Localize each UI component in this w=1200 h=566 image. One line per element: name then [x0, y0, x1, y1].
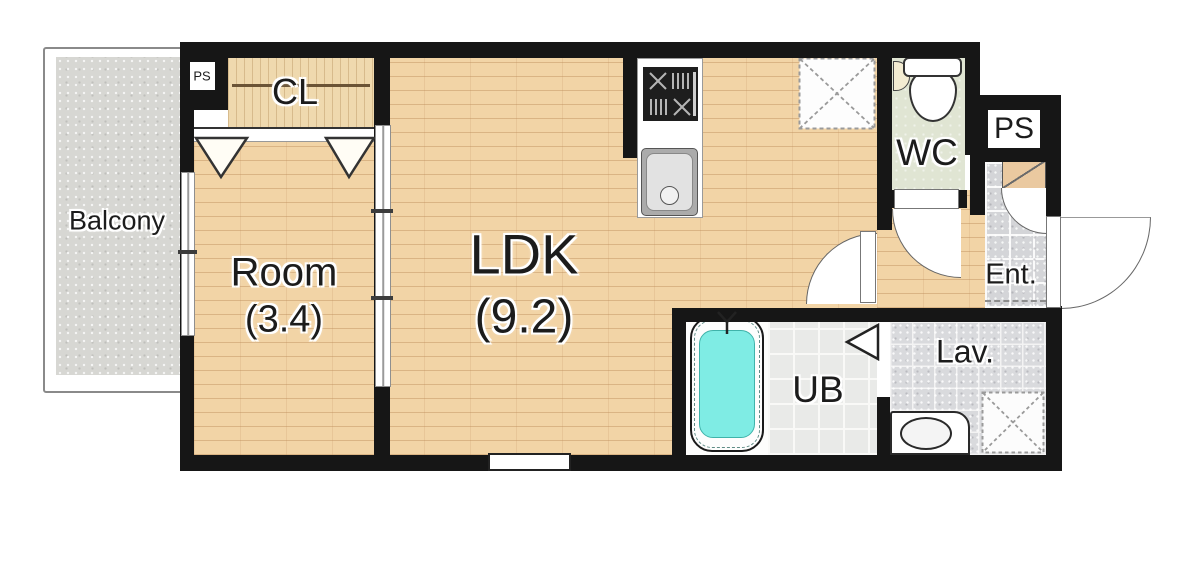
unit-bath-label: UB — [792, 369, 843, 411]
wall-right-lower — [1046, 306, 1062, 471]
room-window — [181, 172, 195, 336]
front-door-swing — [1061, 217, 1151, 309]
ldk-label: LDK — [470, 222, 579, 287]
closet-folding-door-icon — [192, 136, 378, 180]
wc-door-leaf — [894, 189, 959, 209]
wall-entrance-left — [970, 155, 985, 215]
bath-faucet-icon — [712, 308, 742, 336]
ldk-door-leaf — [860, 231, 876, 303]
front-door-leaf — [1046, 216, 1061, 308]
entrance-step-line — [985, 300, 1046, 302]
room-label: Room — [231, 251, 338, 296]
lavatory-label: Lav. — [936, 334, 994, 371]
balcony-label: Balcony — [69, 206, 165, 237]
ps-top-left-label: PS — [193, 69, 210, 84]
toilet-tank — [903, 57, 962, 77]
closet-label: CL — [272, 71, 318, 113]
floor-plan: Balcony PS CL Room (3.4) LDK (9.2) WC PS… — [0, 0, 1200, 566]
entrance-label: Ent. — [985, 259, 1037, 292]
wall-bath-left — [672, 308, 686, 457]
bathtub-water — [699, 330, 755, 438]
shoe-cabinet — [1002, 160, 1046, 189]
wc-label: WC — [896, 132, 958, 174]
room-area-label: (3.4) — [245, 299, 323, 342]
bath-folding-door-icon — [844, 323, 880, 361]
wall-kitchen-stub — [623, 42, 637, 158]
ldk-bottom-window — [488, 453, 571, 471]
stove-icon — [643, 67, 698, 121]
washbasin-bowl — [900, 417, 952, 450]
ps-right-label: PS — [994, 112, 1034, 146]
refrigerator-space — [798, 57, 876, 130]
room-window-tick — [178, 250, 197, 254]
closet-floor-white — [194, 108, 228, 128]
sink-drain — [660, 186, 679, 205]
wall-top — [180, 42, 980, 58]
room-ldk-sliding-door — [375, 125, 391, 387]
wall-right-upper — [1046, 95, 1061, 216]
washing-machine-space — [981, 391, 1045, 454]
sliding-door-tick-1 — [371, 209, 393, 213]
ldk-area-label: (9.2) — [475, 290, 574, 345]
wall-bottom — [180, 455, 1062, 471]
sliding-door-tick-2 — [371, 296, 393, 300]
